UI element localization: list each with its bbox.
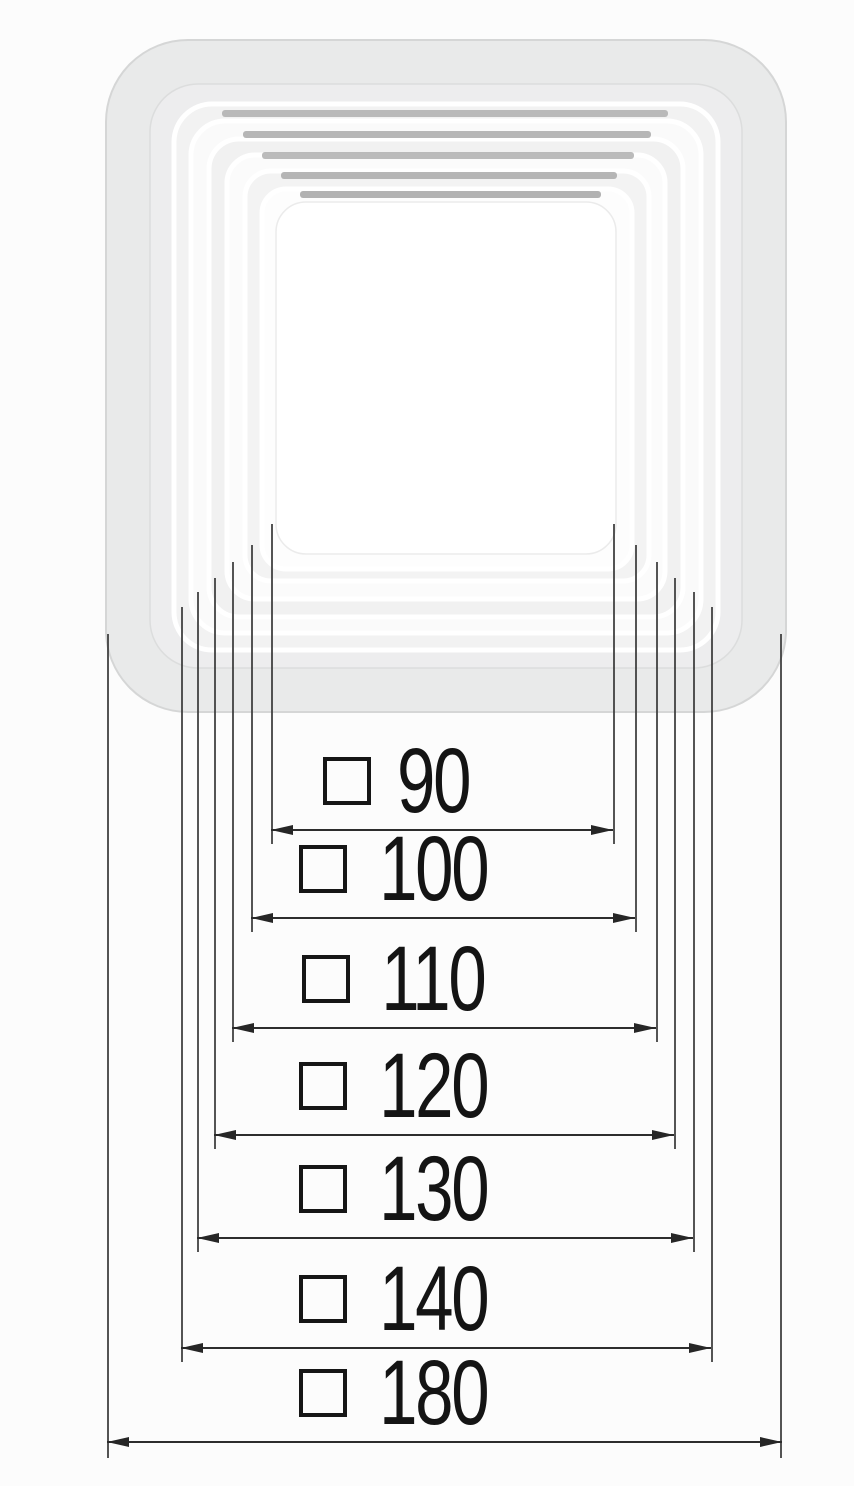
- arrowhead-left: [232, 1023, 254, 1033]
- square-section-symbol: [299, 1275, 347, 1323]
- dimension-value: 100: [379, 823, 487, 915]
- dimension-label: 90: [182, 739, 622, 823]
- square-section-symbol: [299, 1369, 347, 1417]
- dimension-label: 140: [182, 1257, 622, 1341]
- arrowhead-left: [197, 1233, 219, 1243]
- dimension-label: 130: [182, 1147, 622, 1231]
- arrowhead-right: [613, 913, 635, 923]
- dimension-value: 140: [379, 1253, 487, 1345]
- arrowhead-right: [671, 1233, 693, 1243]
- extension-line-left: [107, 634, 109, 1458]
- arrowhead-right: [689, 1343, 711, 1353]
- dimension-label: 120: [182, 1044, 622, 1128]
- dimension-value: 110: [381, 933, 484, 1025]
- arrowhead-right: [634, 1023, 656, 1033]
- square-section-symbol: [323, 757, 371, 805]
- dimension-label: 110: [182, 937, 622, 1021]
- dimension-label: 100: [182, 827, 622, 911]
- product-render-nested-frames: [0, 0, 854, 740]
- arrowhead-left: [214, 1130, 236, 1140]
- slot-bar-100: [300, 191, 601, 198]
- extension-line-right: [635, 545, 637, 932]
- dimension-value: 90: [397, 735, 469, 827]
- arrowhead-left: [107, 1437, 129, 1447]
- arrowhead-right: [760, 1437, 782, 1447]
- dimension-label: 180: [182, 1351, 622, 1435]
- square-section-symbol: [299, 845, 347, 893]
- slot-bar-140: [222, 110, 668, 117]
- square-section-symbol: [302, 955, 350, 1003]
- square-section-symbol: [299, 1165, 347, 1213]
- slot-bar-120: [262, 152, 634, 159]
- extension-line-right: [780, 634, 782, 1458]
- extension-line-right: [711, 607, 713, 1362]
- slot-bar-110: [281, 172, 617, 179]
- dimension-value: 130: [379, 1143, 487, 1235]
- extension-line-right: [693, 592, 695, 1252]
- frame-opening: [276, 202, 616, 554]
- slot-bar-130: [243, 131, 651, 138]
- extension-line-right: [674, 578, 676, 1149]
- arrowhead-left: [251, 913, 273, 923]
- arrowhead-right: [652, 1130, 674, 1140]
- extension-line-right: [656, 562, 658, 1042]
- dimension-value: 120: [379, 1040, 487, 1132]
- dimension-value: 180: [379, 1347, 487, 1439]
- diagram-canvas: 90 100 110: [0, 0, 854, 1486]
- extension-line-left: [181, 607, 183, 1362]
- square-section-symbol: [299, 1062, 347, 1110]
